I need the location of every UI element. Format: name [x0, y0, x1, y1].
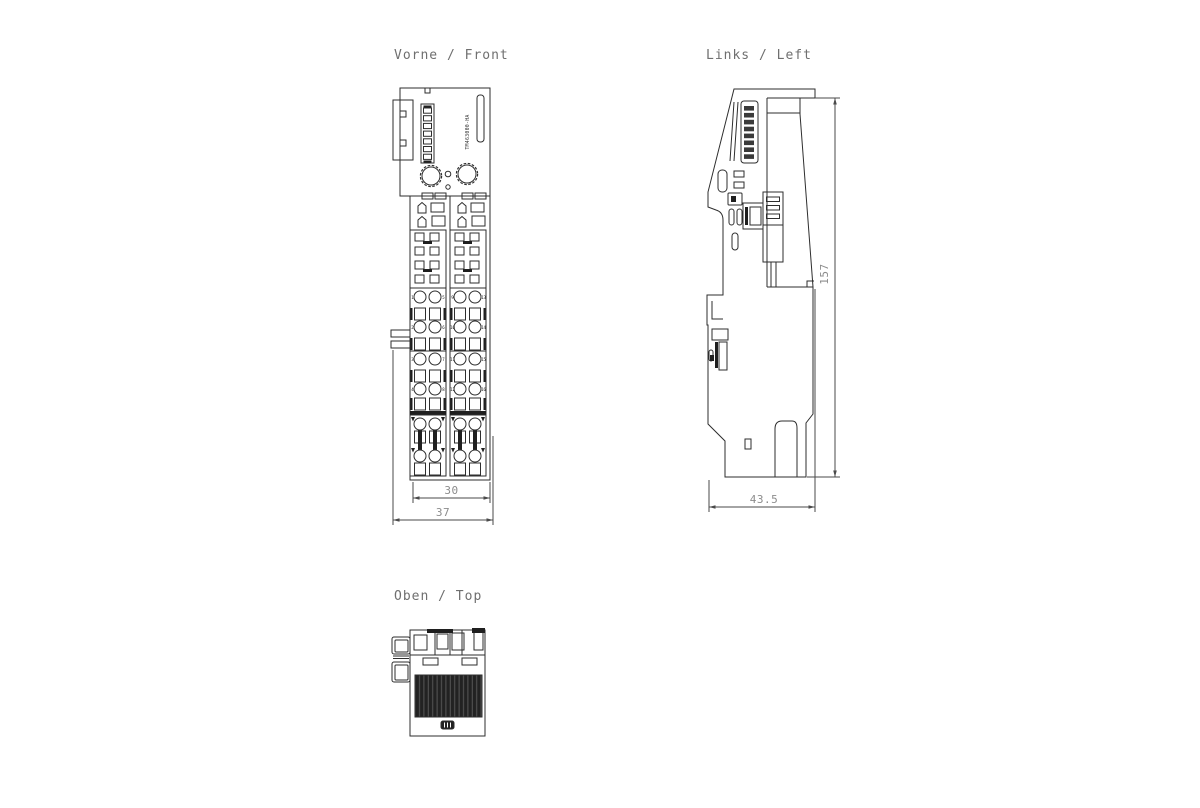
- left-view: 157 43.5: [700, 84, 850, 534]
- dimension-value: 43.5: [750, 493, 779, 506]
- dimension-value: 157: [818, 263, 831, 284]
- upper-contact-blocks: [410, 230, 486, 288]
- front-upper-housing: TM463000-HA: [393, 88, 490, 196]
- small-hole: [446, 185, 450, 189]
- terminal-number: 5: [442, 295, 445, 300]
- rotary-switch-left: [420, 165, 441, 186]
- din-rail-tab: [391, 330, 410, 337]
- dimension-overall-depth: 43.5: [709, 289, 815, 512]
- release-lever-icon: [418, 217, 426, 228]
- ventilation-grid: [415, 675, 482, 717]
- flange-hole: [400, 140, 406, 146]
- side-profile-details: [709, 98, 815, 477]
- top-notch: [425, 88, 430, 93]
- bottom-hole: [745, 439, 751, 449]
- side-profile-outline: [707, 89, 815, 477]
- left-view-drawing: 157 43.5: [700, 84, 850, 534]
- rotary-switch-right: [456, 163, 477, 184]
- terminal-number: 13: [481, 295, 486, 300]
- din-rail-tab: [391, 341, 410, 348]
- terminal-row: 4 8 12 16: [411, 383, 487, 410]
- release-lever-icon: [458, 217, 466, 228]
- top-terminal-compartments: [410, 628, 485, 655]
- release-lever-icon: [458, 203, 466, 214]
- terminal-number: 8: [442, 387, 445, 392]
- top-mounting-tabs: [392, 637, 410, 682]
- top-slot: [462, 658, 477, 665]
- terminal-row: 2 6 10 14: [411, 321, 487, 350]
- top-view-drawing: [385, 586, 505, 756]
- contact-squares: [415, 233, 479, 283]
- terminal-number: 15: [481, 357, 486, 362]
- part-number-vertical-text: TM463000-HA: [465, 114, 471, 149]
- flange-hole: [400, 111, 406, 117]
- top-view: [385, 586, 505, 756]
- interface-connector-side: [743, 203, 763, 229]
- terminal-row: 1 5 9 13: [411, 291, 487, 320]
- lower-terminal-side: [709, 329, 728, 370]
- bus-connector: [421, 104, 434, 163]
- front-view-drawing: TM463000-HA: [388, 84, 503, 534]
- terminal-number: 14: [481, 325, 486, 330]
- bus-connector-side: [741, 101, 758, 163]
- terminal-number: 16: [481, 387, 486, 392]
- terminal-number: 11: [450, 357, 455, 362]
- terminal-number: 7: [442, 357, 445, 362]
- front-view: TM463000-HA: [388, 84, 503, 534]
- top-slot: [423, 658, 438, 665]
- din-rail-hook: [712, 301, 723, 319]
- dimension-value: 30: [444, 484, 458, 497]
- dimension-terminal-width: 30: [413, 482, 490, 503]
- mounting-flange: [393, 100, 413, 160]
- terminal-row: 3 7 11 15: [411, 353, 487, 382]
- terminal-number: 10: [450, 325, 455, 330]
- bridged-power-terminals: [410, 411, 486, 476]
- terminal-number: 12: [450, 387, 455, 392]
- dimension-overall-width: 37: [393, 350, 493, 525]
- dimensional-drawing-page: Vorne / Front: [0, 0, 1200, 808]
- dimension-value: 37: [436, 506, 450, 519]
- release-lever-icon: [418, 203, 426, 214]
- side-slot-bar: [477, 95, 484, 142]
- release-lever-zone: [418, 193, 486, 230]
- small-hole: [445, 171, 451, 177]
- bottom-grill: [441, 721, 454, 729]
- left-view-label: Links / Left: [706, 48, 812, 63]
- terminal-number: 6: [442, 325, 445, 330]
- terminal-blocks: 1 5 9 13 2 6 10 14: [410, 288, 486, 476]
- front-view-label: Vorne / Front: [394, 48, 509, 63]
- bottom-channel: [775, 421, 797, 477]
- slotted-block-side: [763, 192, 783, 287]
